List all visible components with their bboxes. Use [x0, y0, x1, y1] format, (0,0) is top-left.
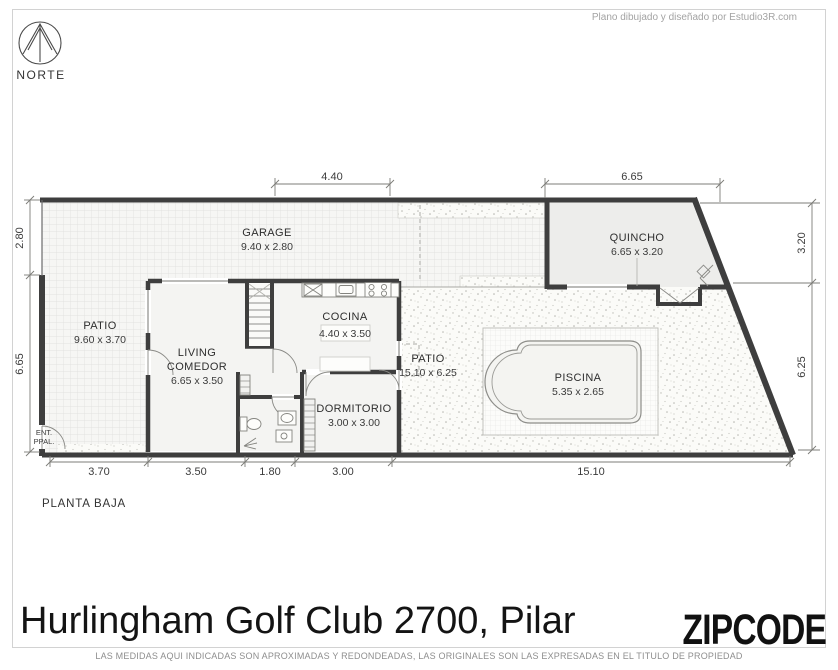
dim-bottom-5: 15.10: [577, 466, 605, 478]
room-label-quincho: QUINCHO: [610, 232, 665, 244]
room-size-patio-right: 15.10 x 6.25: [399, 367, 457, 379]
dim-bottom-4: 3.00: [332, 466, 353, 478]
floor-plan-svg: NORTE Plano dibujado y diseñado por Estu…: [0, 0, 838, 670]
dim-left-upper: 2.80: [14, 227, 26, 248]
dim-right-upper: 3.20: [796, 232, 808, 253]
room-label-living-1: LIVING: [178, 347, 216, 359]
stove-icon: [365, 283, 391, 298]
room-label-piscina: PISCINA: [555, 372, 602, 384]
disclaimer-text: LAS MEDIDAS AQUI INDICADAS SON APROXIMAD…: [0, 651, 838, 661]
bidet-icon: [276, 430, 292, 442]
washbasin-icon: [278, 411, 296, 425]
storage-strip: [304, 399, 315, 451]
dim-top-quincho: 6.65: [621, 171, 642, 183]
dim-bottom-3: 1.80: [259, 466, 280, 478]
room-size-quincho: 6.65 x 3.20: [611, 246, 663, 258]
room-label-patio-left: PATIO: [83, 320, 116, 332]
room-size-piscina: 5.35 x 2.65: [552, 386, 604, 398]
entry-label-1: ENT.: [36, 428, 52, 437]
room-label-patio-right: PATIO: [411, 353, 444, 365]
north-arrow-icon: [19, 22, 61, 64]
closet: [240, 375, 250, 395]
room-size-garage: 9.40 x 2.80: [241, 241, 293, 253]
room-label-cocina: COCINA: [322, 311, 367, 323]
credit-text: Plano dibujado y diseñado por Estudio3R.…: [592, 12, 797, 23]
stairs: [249, 283, 270, 346]
entry-label-2: PPAL.: [34, 437, 55, 446]
zipcode-logo: ZIPCODE: [682, 606, 826, 655]
compass-label: NORTE: [16, 68, 65, 82]
page: NORTE Plano dibujado y diseñado por Estu…: [0, 0, 838, 670]
dim-top-garage: 4.40: [321, 171, 342, 183]
room-size-cocina: 4.40 x 3.50: [319, 328, 371, 340]
dim-left-lower: 6.65: [14, 353, 26, 374]
room-label-living-2: COMEDOR: [167, 361, 227, 373]
dim-right-lower: 6.25: [796, 356, 808, 377]
room-size-living: 6.65 x 3.50: [171, 375, 223, 387]
dim-bottom-2: 3.50: [185, 466, 206, 478]
room-size-patio-left: 9.60 x 3.70: [74, 334, 126, 346]
room-label-garage: GARAGE: [242, 227, 291, 239]
room-label-dormitorio: DORMITORIO: [316, 403, 391, 415]
floor-label: PLANTA BAJA: [42, 498, 126, 510]
room-size-dormitorio: 3.00 x 3.00: [328, 417, 380, 429]
toilet-icon: [240, 417, 261, 431]
plan-textures: [42, 200, 790, 453]
dim-bottom-1: 3.70: [88, 466, 109, 478]
listing-title: Hurlingham Golf Club 2700, Pilar: [20, 600, 576, 643]
